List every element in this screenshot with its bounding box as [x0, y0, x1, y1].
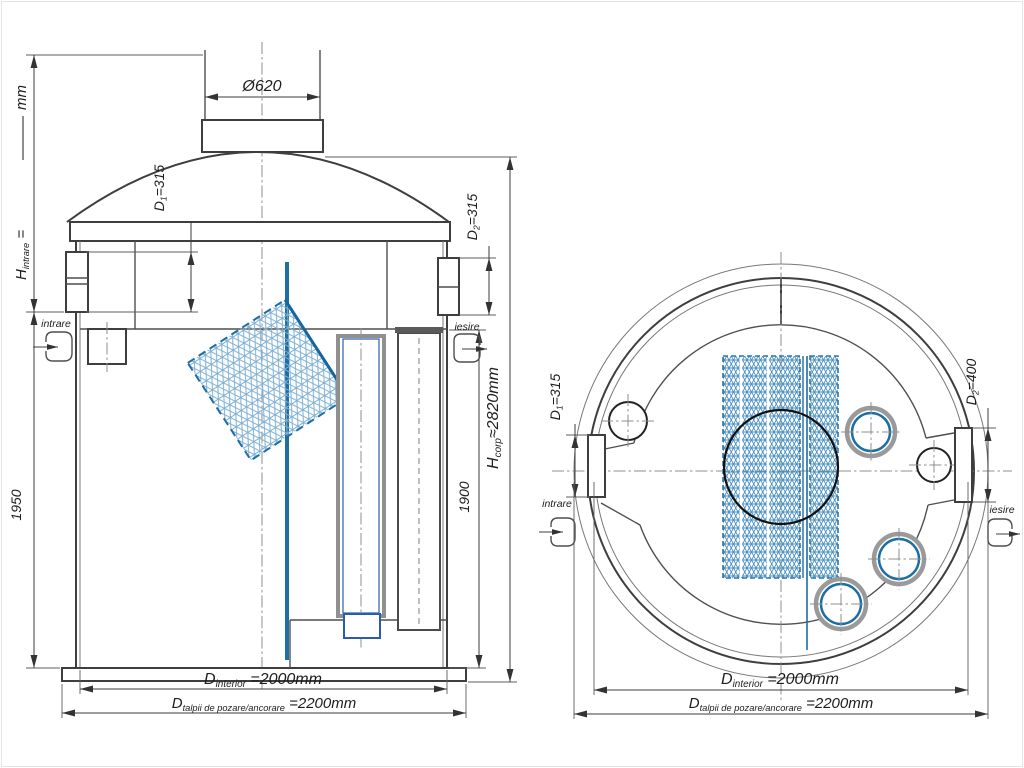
- pipe-port-1: [841, 402, 901, 462]
- dim-h-corp-label: Hcorp≈2820mm: [485, 367, 504, 469]
- column-right-cap: [395, 327, 443, 333]
- dim-d1-front-label: D1=315: [151, 165, 169, 212]
- dim-d1-top-label: D1=315: [547, 374, 565, 421]
- column-left-foot: [344, 614, 380, 638]
- dim-d-talpa-front-label: Dtalpii de pozare/ancorare =2200mm: [172, 695, 356, 713]
- technical-drawing: Ø620 Hintrare = mm D1=315 D2=315: [0, 0, 1024, 768]
- inlet-stub-front: [66, 252, 88, 312]
- dim-1950: 1950: [8, 312, 60, 668]
- dim-d1-top: D1=315: [547, 374, 590, 497]
- dim-h-intrare: Hintrare = mm: [13, 55, 203, 312]
- top-intrare-label: intrare: [542, 498, 572, 510]
- top-iesire-label: iesire: [989, 504, 1014, 516]
- top-outlet-flow: iesire: [988, 504, 1020, 546]
- pipe-port-3: [810, 573, 872, 635]
- column-left: [338, 328, 384, 648]
- roof-band: [70, 222, 450, 241]
- column-right: [395, 327, 443, 630]
- pipe-port-2: [868, 528, 930, 590]
- coalescing-filter-panel: [188, 300, 360, 479]
- manhole-collar: [202, 120, 323, 152]
- top-outlet-flow-icon: [988, 519, 1020, 546]
- dim-phi620-label: Ø620: [241, 78, 281, 95]
- inspection-port-left: [601, 394, 655, 448]
- dim-h-intrare-label: Hintrare =: [13, 230, 31, 280]
- top-inlet-flow-icon: [539, 518, 575, 546]
- front-inlet-flow: intrare: [33, 318, 72, 361]
- dim-phi620: Ø620: [205, 78, 320, 97]
- dome: [67, 152, 449, 222]
- inlet-flow-icon: [33, 332, 72, 361]
- dim-1900-label: 1900: [456, 481, 472, 512]
- drawing-canvas: Ø620 Hintrare = mm D1=315 D2=315: [0, 0, 1024, 768]
- inspection-port-right: [909, 440, 959, 490]
- dim-1900: 1900: [449, 330, 486, 668]
- outlet-stub-top: [955, 428, 972, 502]
- dim-d2-front: D2=315: [459, 194, 496, 315]
- front-iesire-label: iesire: [454, 321, 479, 333]
- front-intrare-label: intrare: [41, 318, 71, 330]
- top-inlet-flow: intrare: [539, 498, 575, 546]
- front-view: Ø620 Hintrare = mm D1=315 D2=315: [8, 42, 517, 718]
- outlet-flow-icon: [454, 334, 487, 362]
- dim-d2-top-label: D2=400: [963, 359, 981, 406]
- top-view: D1=315 D2=400 Dinterior =2000mm Dtalpii …: [539, 252, 1020, 719]
- dim-d2-front-label: D2=315: [464, 194, 482, 241]
- dim-1950-label: 1950: [8, 489, 24, 520]
- outlet-stub-front: [438, 258, 459, 315]
- front-outlet-flow: iesire: [454, 321, 487, 362]
- inlet-stub-top: [588, 435, 605, 497]
- dim-h-intrare-unit: mm: [13, 85, 30, 110]
